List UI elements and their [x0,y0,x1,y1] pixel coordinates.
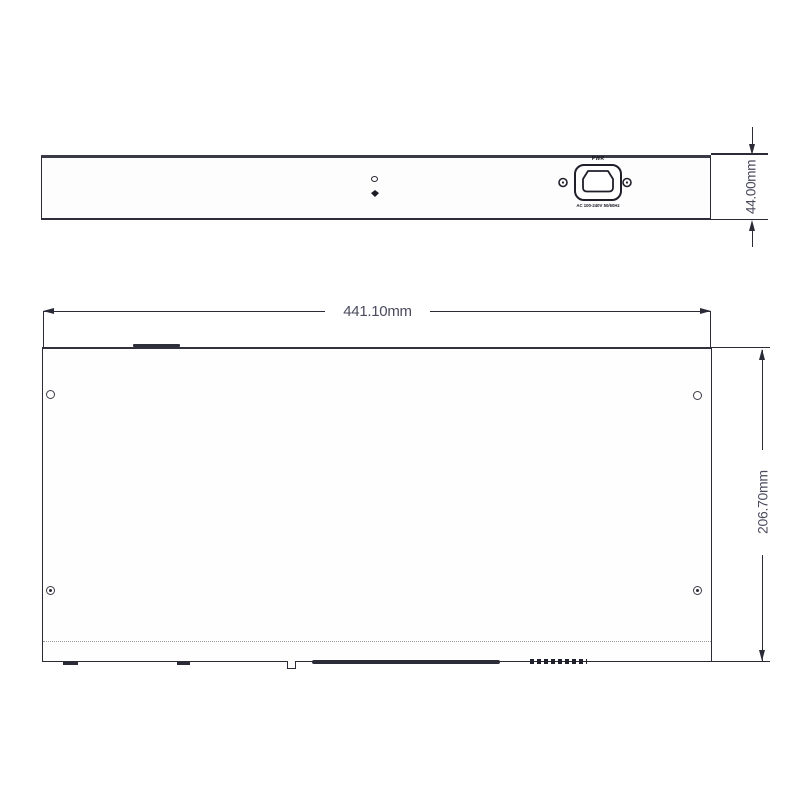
dim-width-arrow-left-icon [43,308,54,314]
power-inlet-label: PWR [575,156,621,162]
inlet-screw-dot-right [626,181,628,183]
bottom-notch [287,661,296,669]
dimension-drawing: PWR AC 100-240V 50/60Hz 44.00mm 441.10mm… [0,0,800,800]
power-rating-label: AC 100-240V 50/60Hz [564,203,632,208]
dim-depth-value: 206.70mm [753,450,772,555]
indicator-hole [371,176,378,182]
foot-pad-mid [177,662,190,665]
mount-hole-top-right [693,391,702,400]
bottom-edge-strip [312,660,500,664]
bottom-vent-slots [530,659,587,664]
top-view-outline [42,347,712,662]
dim-depth-arrow-down-icon [759,650,765,661]
dim-width-value: 441.10mm [325,302,430,321]
dim-width-ext-left [43,312,44,347]
top-edge-latch-mark [133,344,180,348]
mount-hole-top-left [46,390,55,399]
dim-depth-arrow-up-icon [759,349,765,360]
dim-height-value: 44.00mm [742,152,760,222]
foot-pad-left [63,662,78,665]
mount-hole-bottom-left [46,586,55,595]
mount-hole-bottom-right [693,586,702,595]
iec-c14-socket-icon [583,171,613,192]
inlet-screw-dot-left [562,181,564,183]
hidden-edge-dotted-line [43,641,711,642]
dim-width-ext-right [710,312,711,347]
